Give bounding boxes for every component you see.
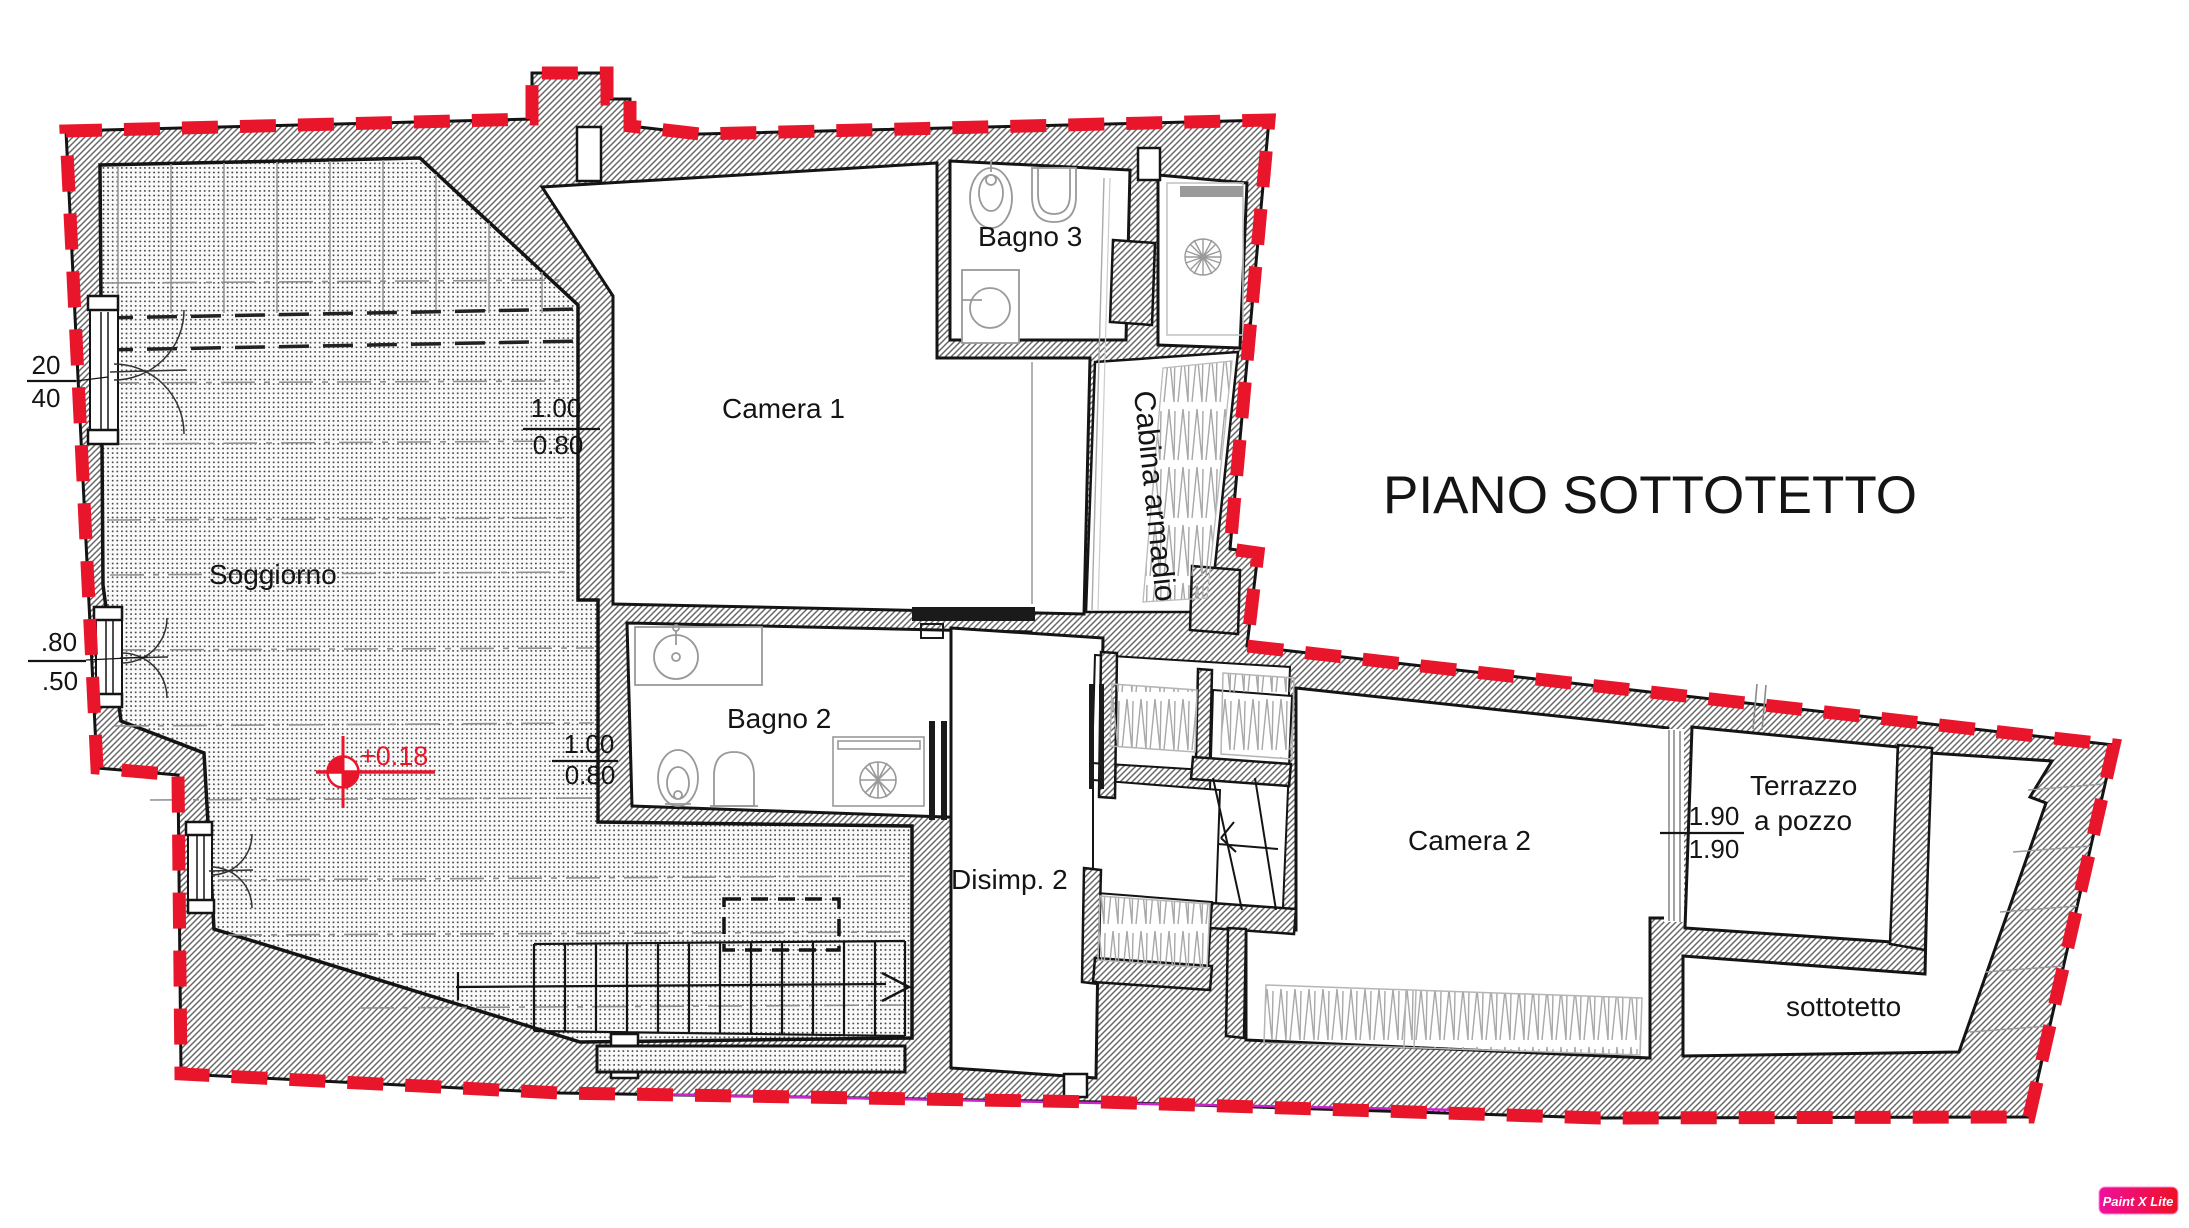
svg-text:1.00: 1.00	[564, 729, 615, 759]
svg-text:Camera 2: Camera 2	[1408, 825, 1531, 856]
svg-text:0.80: 0.80	[533, 430, 584, 460]
svg-text:sottotetto: sottotetto	[1786, 991, 1901, 1022]
svg-text:Bagno 2: Bagno 2	[727, 703, 831, 734]
svg-text:Disimp. 2: Disimp. 2	[951, 864, 1068, 895]
svg-text:1.90: 1.90	[1689, 834, 1740, 864]
svg-text:.50: .50	[42, 666, 78, 696]
svg-text:PIANO SOTTOTETTO: PIANO SOTTOTETTO	[1383, 466, 1917, 525]
svg-text:40: 40	[32, 383, 61, 413]
svg-text:1.00: 1.00	[531, 393, 582, 423]
svg-text:1.90: 1.90	[1689, 801, 1740, 831]
svg-text:Terrazzo: Terrazzo	[1750, 770, 1857, 801]
svg-text:+0.18: +0.18	[360, 741, 428, 771]
svg-text:.80: .80	[41, 627, 77, 657]
svg-text:Soggiorno: Soggiorno	[209, 559, 337, 590]
svg-text:Paint X Lite: Paint X Lite	[2103, 1194, 2174, 1209]
svg-text:a pozzo: a pozzo	[1754, 805, 1852, 836]
svg-text:Camera 1: Camera 1	[722, 393, 845, 424]
svg-text:Bagno 3: Bagno 3	[978, 221, 1082, 252]
svg-text:0.80: 0.80	[565, 760, 616, 790]
svg-text:20: 20	[32, 350, 61, 380]
